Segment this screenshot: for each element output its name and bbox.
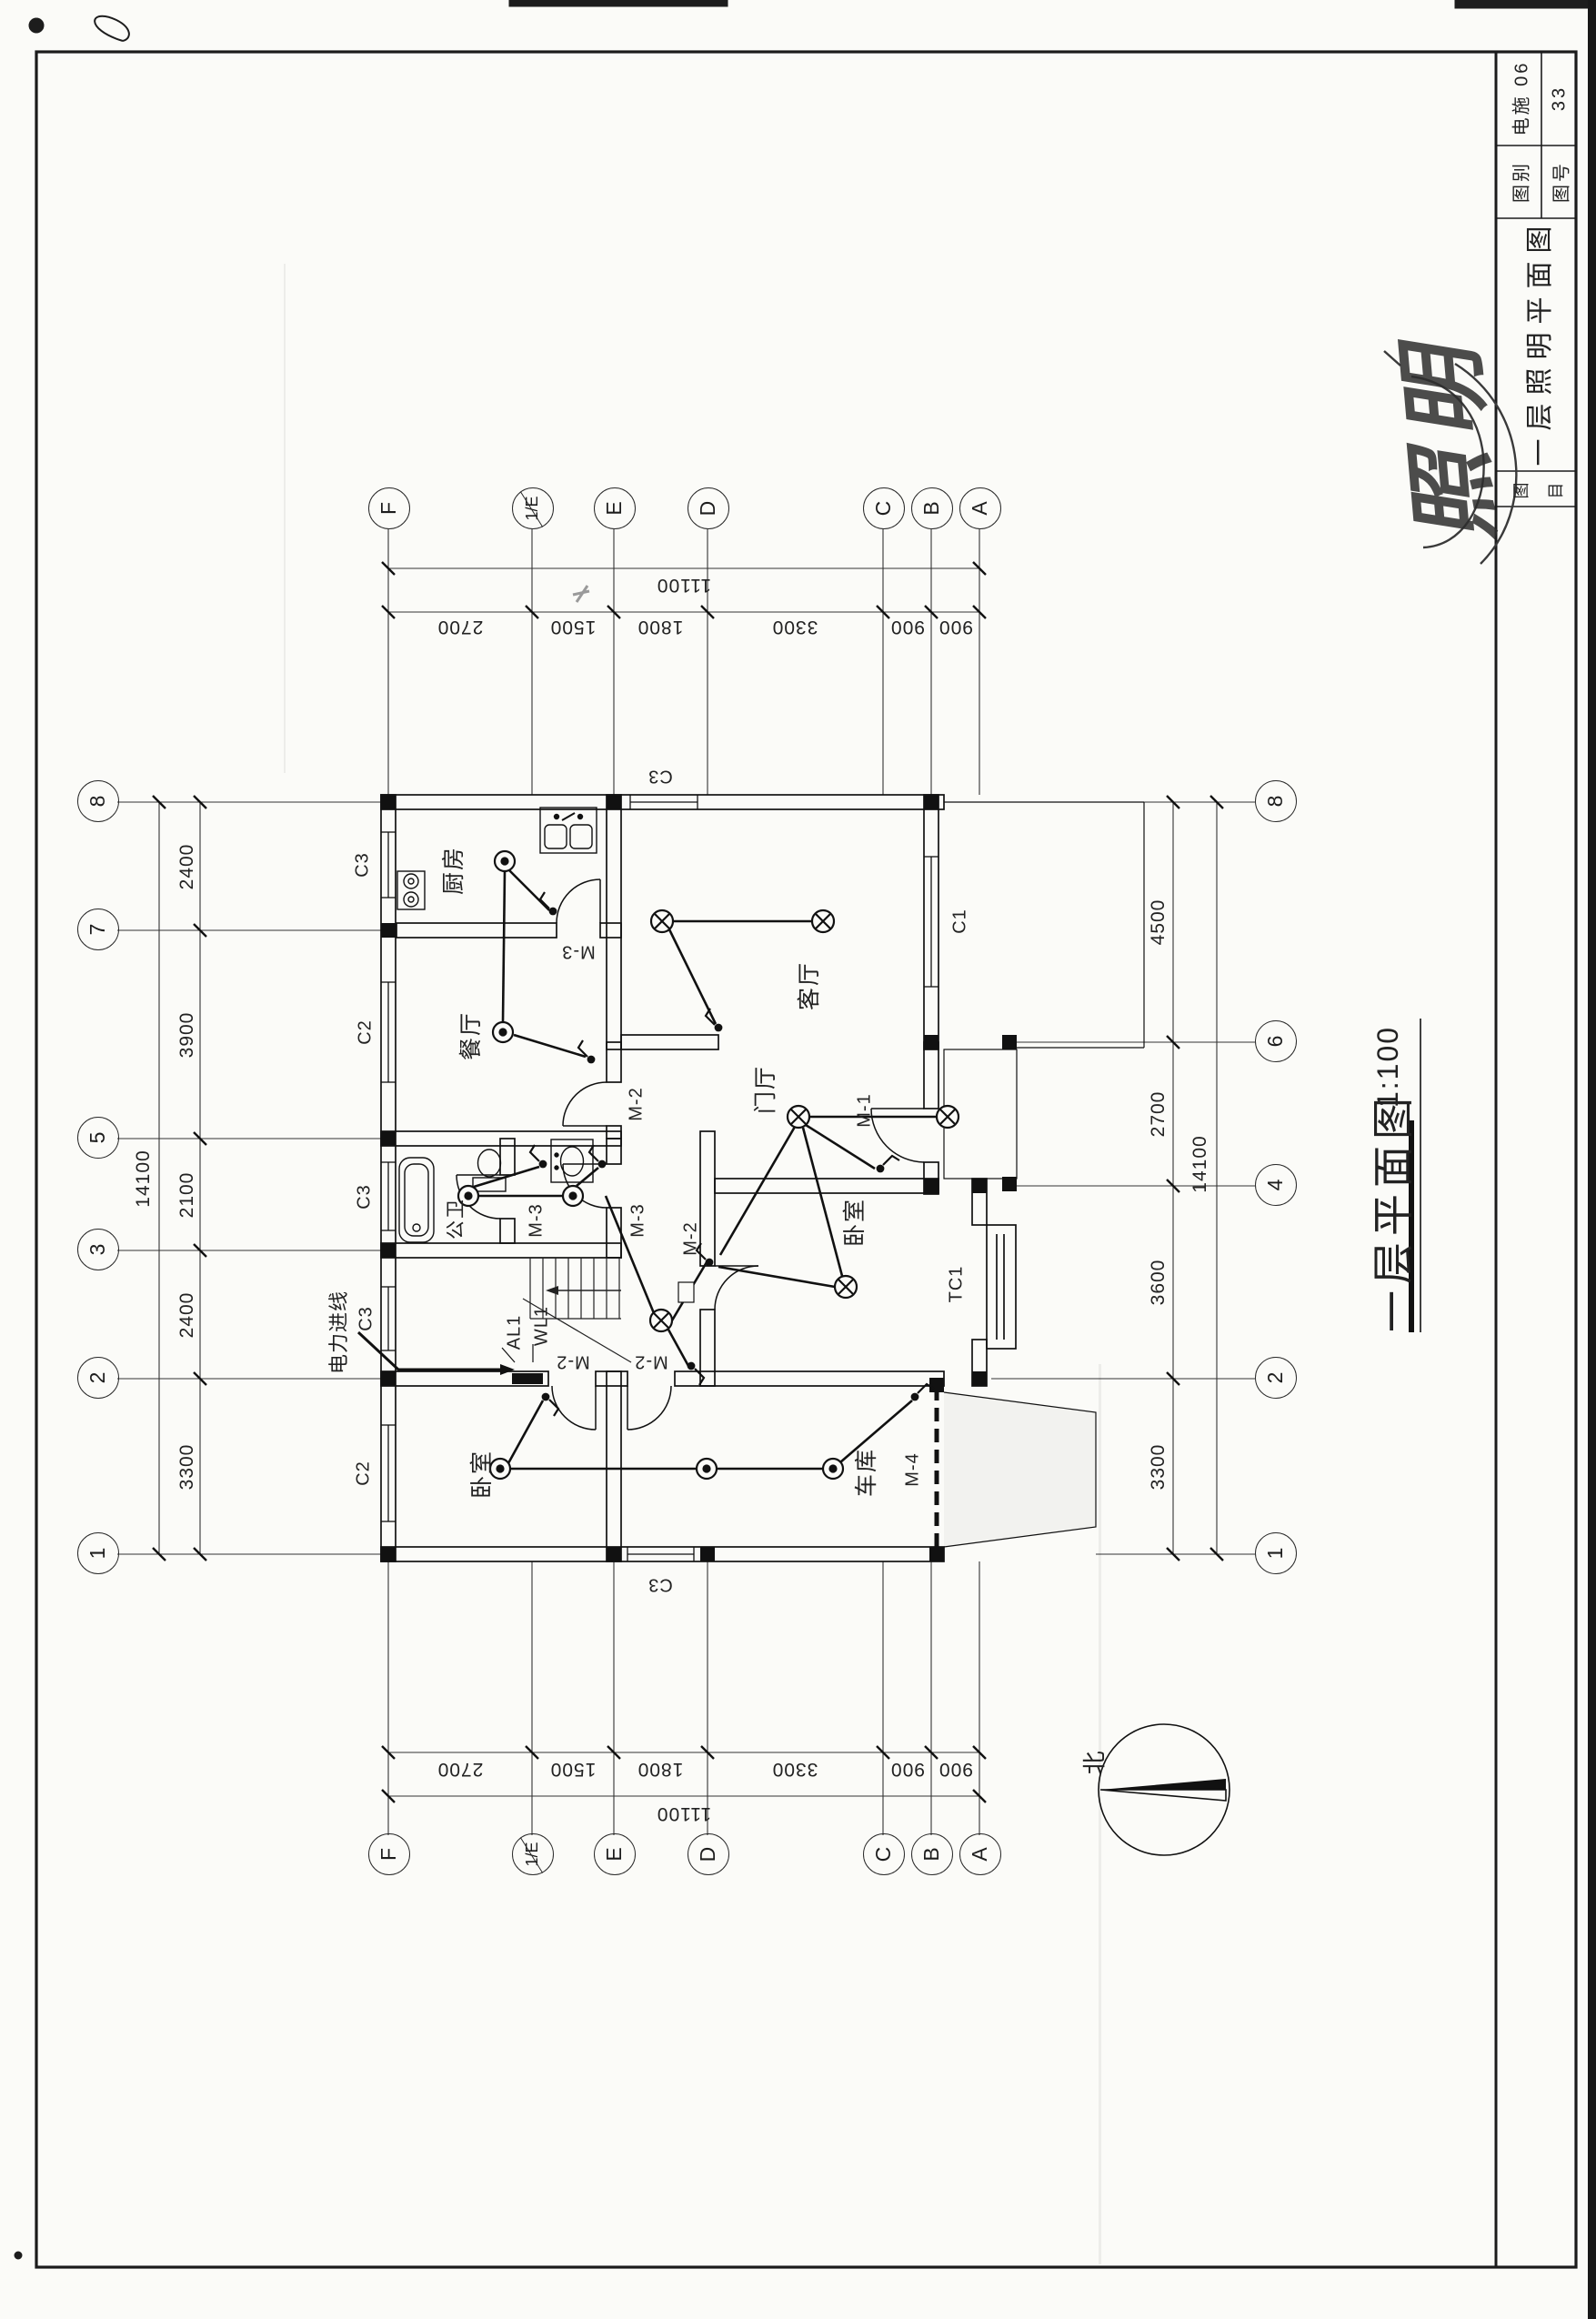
door-label-m3: M-3 [628,1203,649,1237]
paper-crease [1099,1364,1101,2264]
titleblock-number-label: 图号 [1547,161,1573,203]
dim-right: 1800 [606,616,715,637]
grid-bubble-col: 6 [1255,1020,1297,1062]
grid-label: 1 [85,1548,109,1560]
titleblock-name-label-bottom: 目 [1543,480,1567,499]
room-label-bedroom-left: 卧室 [464,1450,497,1499]
plan-scale: 1:100 [1371,1026,1405,1108]
dim-right: 900 [901,616,1010,637]
grid-label: B [919,501,943,515]
grid-bubble-row: A [959,1833,1001,1875]
room-label-foyer: 门厅 [748,1065,780,1114]
grid-bubble-row: B [911,487,953,529]
dim-top: 2400 [176,812,198,921]
room-label-garage: 车库 [848,1448,881,1497]
grid-bubble-col: 8 [77,780,119,822]
plan-title: 一层平面图 [1360,1091,1420,1332]
grid-bubble-row: 1/E [512,487,554,529]
grid-label: A [968,1847,991,1861]
dim-bottom: 2700 [1148,1059,1169,1169]
grid-label: C [871,1847,895,1862]
grid-label: 2 [85,1372,109,1384]
door-label-m4: M-4 [903,1452,924,1486]
grid-bubble-col: 3 [77,1229,119,1270]
door-label-m2: M-2 [627,1087,647,1120]
window-label-c3: C3 [355,1184,376,1210]
dim-bottom: 3300 [1148,1412,1169,1521]
grid-label: B [919,1847,943,1861]
circuit-label-wl1: WL1 [532,1306,553,1346]
dim-top: 3900 [176,980,198,1089]
door-label-m2: M-2 [681,1221,702,1255]
dim-bottom: 3600 [1148,1228,1169,1337]
grid-bubble-col: 4 [1255,1164,1297,1206]
dim-total-width-bottom: 14100 [1189,1109,1211,1219]
paper-crease [284,264,286,773]
dim-left: 1800 [606,1758,715,1780]
grid-bubble-col: 7 [77,909,119,950]
titleblock-category-value: 电施 06 [1507,61,1533,136]
window-label-c3: C3 [647,1574,673,1595]
grid-bubble-col: 1 [77,1532,119,1574]
grid-bubble-col: 2 [77,1357,119,1399]
dim-left: 2700 [406,1758,515,1780]
dim-top: 2400 [176,1260,198,1370]
dim-total-height-left: 11100 [629,1802,738,1824]
power-feed-label: 电力进线 [323,1290,352,1374]
dim-ticks [153,562,1223,1802]
wiring [358,870,937,1469]
grid-bubble-col: 5 [77,1117,119,1159]
landscape-drawing: 1 2 3 5 7 8 1 2 4 6 8 F 1/E E D C B A F … [0,0,1596,2319]
dim-top: 2100 [176,1140,198,1250]
room-label-kitchen: 厨房 [436,846,468,895]
grid-label: 8 [85,796,109,808]
grid-bubble-col: 1 [1255,1532,1297,1574]
plan-linework [0,0,1596,2319]
room-label-living: 客厅 [791,961,824,1010]
dim-top: 3300 [176,1412,198,1521]
window-label-c3: C3 [356,1306,377,1331]
titleblock-drawing-title: 一层照明平面图 [1517,218,1557,467]
window-label-c3: C3 [353,852,374,878]
room-label-dining: 餐厅 [453,1011,486,1060]
grid-bubble-row: A [959,487,1001,529]
north-arrow-icon [1099,1724,1230,1855]
grid-bubble-row: E [594,487,636,529]
dim-left: 3300 [740,1758,849,1780]
sheet-frame [36,52,1576,2267]
grid-label: 1 [1263,1548,1287,1560]
grid-label: A [968,501,991,515]
dim-right: 2700 [406,616,515,637]
room-label-bath: 公卫 [441,1198,468,1240]
titleblock-category-label: 图别 [1507,161,1533,203]
approval-stamp-text: 照明 [1366,331,1515,549]
grid-label: 3 [85,1244,109,1256]
grid-bubble-col: 8 [1255,780,1297,822]
grid-label: C [871,501,895,517]
grid-bubble-row: F [368,1833,410,1875]
grid-bubble-row: E [594,1833,636,1875]
grid-label: 7 [85,924,109,936]
grid-label: E [602,501,626,515]
scanned-sheet: 1 2 3 5 7 8 1 2 4 6 8 F 1/E E D C B A F … [0,0,1596,2319]
door-label-m3: M-3 [527,1203,547,1237]
north-label: 北 [1077,1750,1110,1774]
grid-label: 6 [1263,1036,1287,1048]
door-label-m1: M-1 [855,1093,876,1127]
grid-label: 4 [1263,1180,1287,1191]
panel-label-al1: AL1 [505,1315,526,1350]
scan-edge [1588,0,1596,2319]
titleblock-number-value: 33 [1550,85,1571,111]
grid-label: 5 [85,1132,109,1144]
grid-label: 2 [1263,1372,1287,1384]
room-label-bedroom-main: 卧室 [837,1198,869,1247]
window-label-c1: C1 [950,909,971,934]
window-label-c3: C3 [647,766,673,787]
grid-bubble-row: D [688,1833,729,1875]
grid-label: F [376,1848,400,1861]
dim-bottom: 4500 [1148,868,1169,977]
dim-right: 3300 [740,616,849,637]
grid-label: D [696,501,719,517]
dim-left: 900 [901,1758,1010,1780]
dim-total-height-right: 11100 [629,574,738,596]
grid-label: 8 [1263,796,1287,808]
grid-bubble-row: B [911,1833,953,1875]
grid-bubble-row: 1/E [512,1833,554,1875]
window-label-tc1: TC1 [947,1266,968,1303]
grid-label: D [696,1847,719,1862]
grid-label: E [602,1847,626,1861]
grid-and-dim-lines [117,529,1255,1835]
doors [457,879,1096,1547]
door-label-m3: M-3 [561,941,595,962]
grid-bubble-row: F [368,487,410,529]
door-label-m2: M-2 [556,1351,589,1372]
titleblock-name-label-top: 图 [1509,480,1532,499]
grid-label: F [376,502,400,515]
dim-total-width-top: 14100 [133,1124,155,1233]
window-label-c2: C2 [356,1019,376,1045]
door-label-m2: M-2 [634,1351,668,1372]
grid-bubble-row: C [863,1833,905,1875]
grid-bubble-row: D [688,487,729,529]
grid-bubble-col: 2 [1255,1357,1297,1399]
grid-bubble-row: C [863,487,905,529]
window-label-c2: C2 [354,1461,375,1486]
switches [530,892,934,1416]
